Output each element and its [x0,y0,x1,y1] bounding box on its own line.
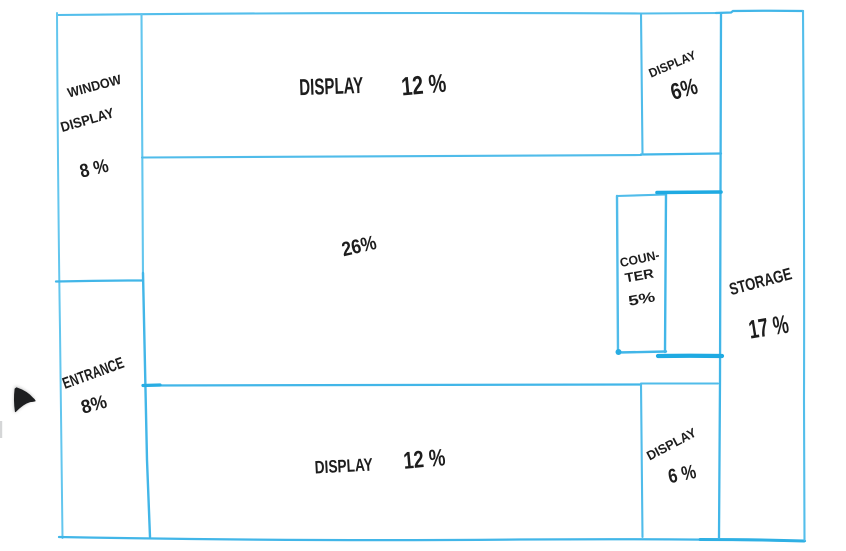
svg-text:DISPLAY: DISPLAY [644,425,699,464]
svg-text:12 %: 12 % [400,68,447,102]
svg-text:WINDOW: WINDOW [66,72,123,101]
svg-text:DISPLAY: DISPLAY [314,455,373,478]
svg-text:STORAGE: STORAGE [727,264,794,299]
svg-text:COUN-: COUN- [619,248,661,270]
svg-text:5%: 5% [627,288,657,309]
svg-text:8%: 8% [79,392,110,419]
svg-text:DISPLAY: DISPLAY [58,104,116,135]
svg-text:8 %: 8 % [78,156,111,183]
svg-text:17 %: 17 % [746,309,790,345]
svg-text:6%: 6% [668,73,701,105]
svg-text:ENTRANCE: ENTRANCE [60,355,126,393]
svg-text:6 %: 6 % [666,461,698,488]
svg-text:26%: 26% [340,232,379,261]
svg-text:DISPLAY: DISPLAY [299,72,364,100]
svg-text:12 %: 12 % [402,444,446,475]
